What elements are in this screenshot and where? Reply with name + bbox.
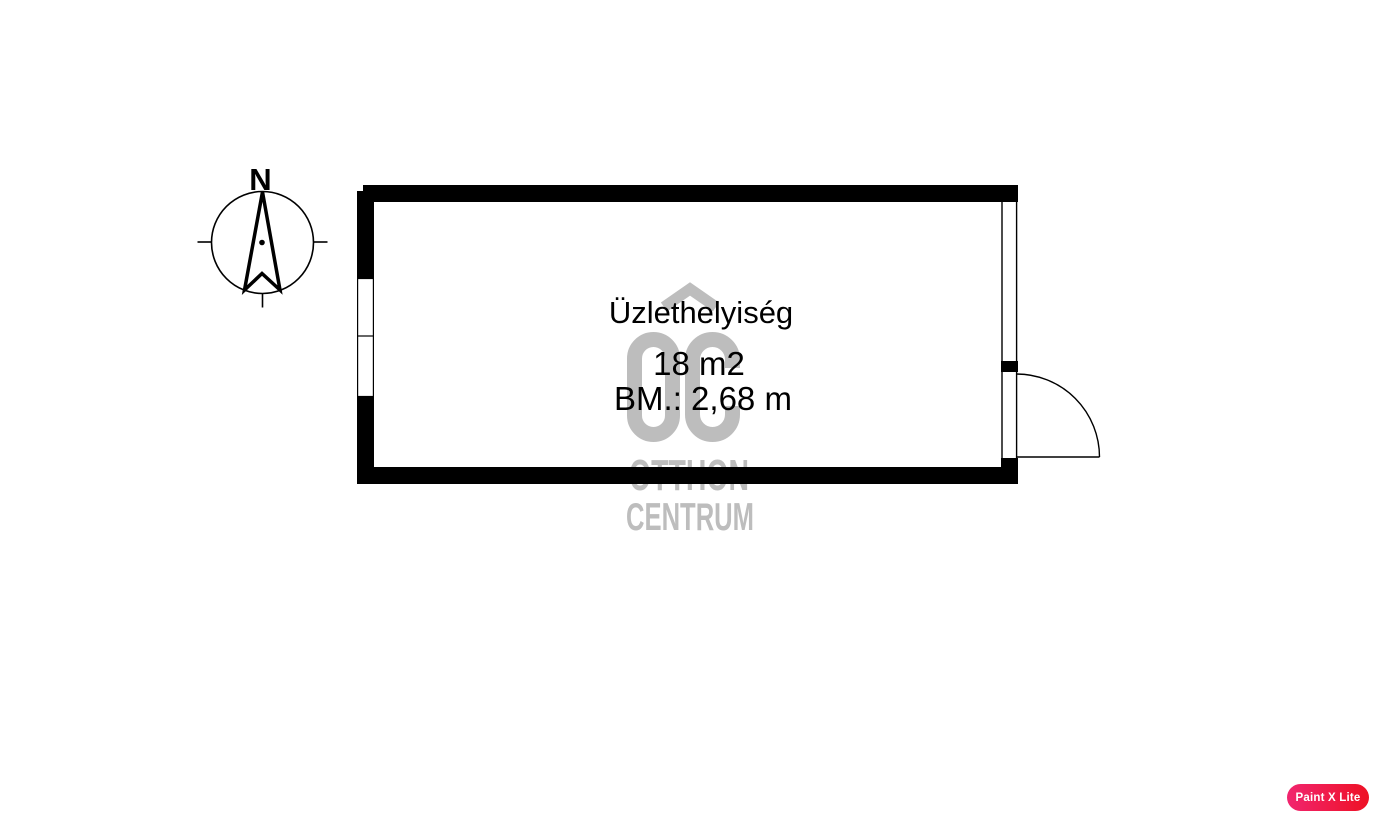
compass-center-dot [259, 240, 265, 246]
wall-top [363, 185, 1018, 202]
wall-right-opening-strip [1001, 202, 1018, 458]
wall-right-corner [1001, 458, 1018, 484]
canvas: OTTHON CENTRUM Üzlethelyiség [0, 0, 1378, 819]
wall-bottom [357, 467, 1018, 484]
north-label: N [249, 162, 271, 197]
walls [357, 185, 1018, 484]
room-area-label: 18 m2 [653, 345, 745, 382]
window-left-frame [358, 279, 374, 397]
wall-right-pier [1001, 361, 1018, 372]
room-height-label: BM.: 2,68 m [614, 380, 792, 417]
north-compass: N [198, 162, 328, 308]
paintx-badge: Paint X Lite [1287, 784, 1369, 811]
floorplan: OTTHON CENTRUM Üzlethelyiség [0, 0, 1378, 819]
double-window-icon [358, 279, 374, 397]
room-name-label: Üzlethelyiség [609, 295, 793, 330]
watermark-centrum-label: CENTRUM [626, 496, 754, 539]
paintx-badge-label: Paint X Lite [1295, 792, 1360, 804]
door-swing-arc [1017, 374, 1100, 457]
door-swing-icon [1017, 374, 1100, 457]
